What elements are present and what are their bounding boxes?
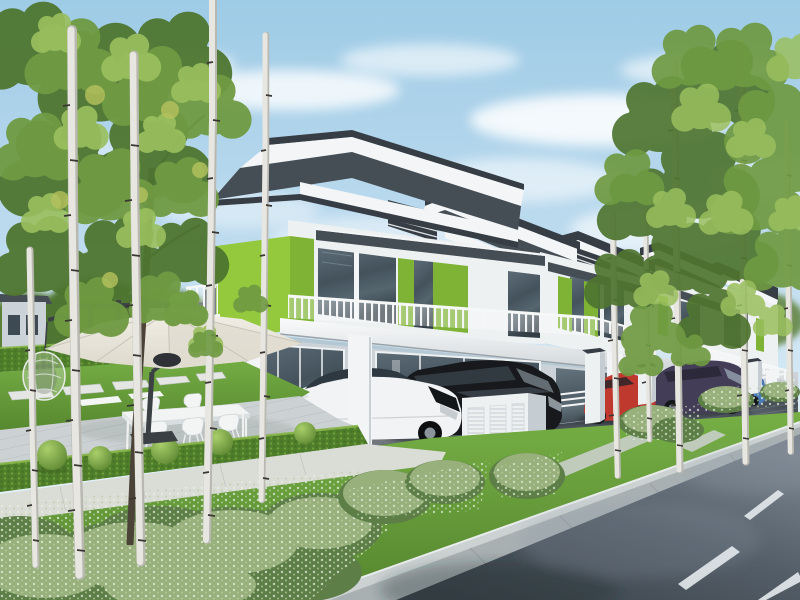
meter-cabinet-2: [582, 348, 606, 424]
architectural-render: [0, 0, 800, 600]
shrub-cluster: [618, 404, 704, 443]
